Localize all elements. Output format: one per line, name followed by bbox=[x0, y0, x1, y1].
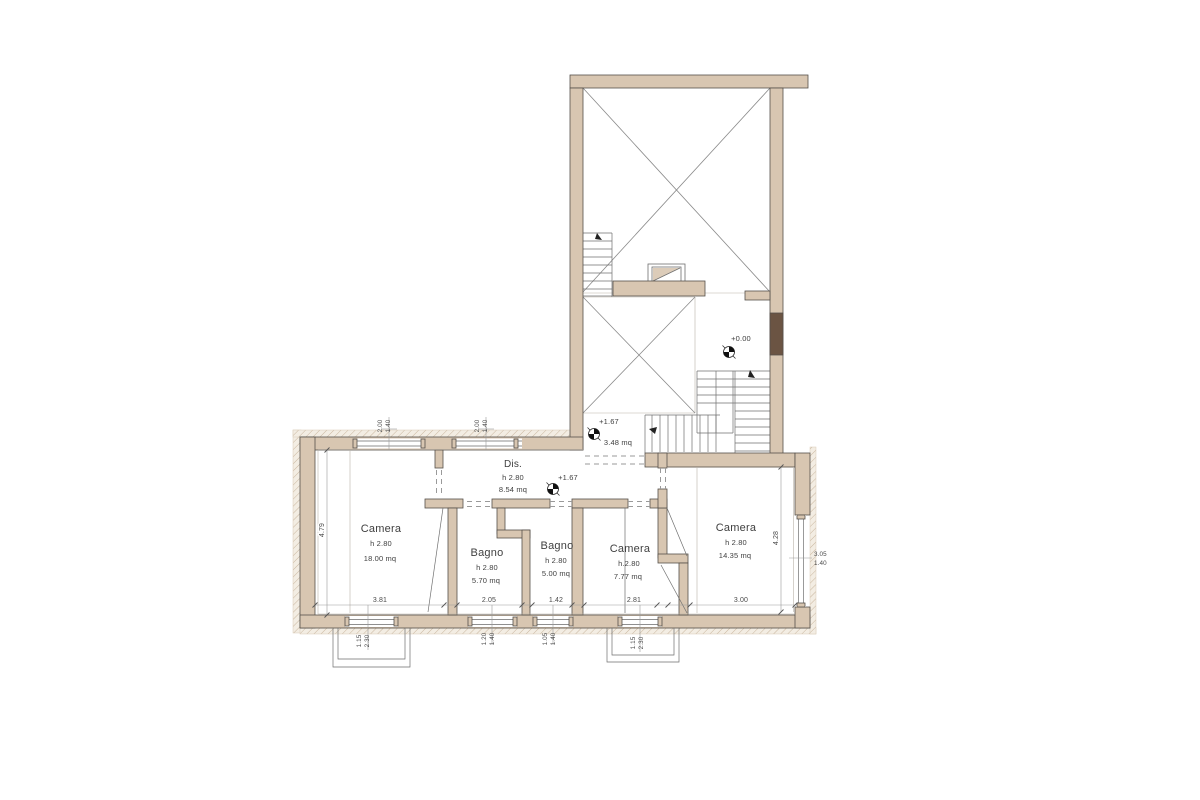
dim-camera1435-width: 3.00 bbox=[734, 597, 748, 604]
room-name: Dis. bbox=[504, 459, 522, 470]
level-marker-symbol bbox=[547, 483, 560, 496]
room-name: Camera bbox=[610, 543, 651, 555]
level-marker-landing: +1.67 bbox=[588, 417, 619, 441]
room-area: 7.77 mq bbox=[614, 572, 642, 581]
dim-camera18-depth: 4.79 bbox=[319, 523, 326, 537]
dim-bagno500-width: 1.42 bbox=[549, 597, 563, 604]
room-height: h 2.80 bbox=[725, 538, 747, 547]
wall-section-dark bbox=[770, 313, 783, 355]
level-value: +1.67 bbox=[558, 473, 578, 482]
room-height: h 2.80 bbox=[476, 563, 498, 572]
window-right bbox=[796, 515, 806, 607]
level-marker-symbol bbox=[723, 346, 736, 359]
dim-window: 2.30 bbox=[638, 636, 645, 649]
outer-walls-tower bbox=[570, 75, 808, 467]
dim-window: 1.20 bbox=[481, 632, 488, 645]
stairs-upper-flight bbox=[582, 233, 612, 297]
tower-bottom-wall bbox=[645, 453, 795, 467]
room-name: Bagno bbox=[471, 547, 504, 559]
stairs-landing-flight bbox=[645, 415, 720, 453]
level-marker-hallway: +1.67 bbox=[547, 473, 578, 496]
window bbox=[452, 439, 522, 449]
dim-window: 2.00 bbox=[474, 419, 481, 432]
window bbox=[468, 616, 517, 627]
dim-window: 2.30 bbox=[364, 634, 371, 647]
room-height: h 2.80 bbox=[502, 473, 524, 482]
void-small-cross bbox=[583, 297, 695, 413]
stair-direction-arrow bbox=[595, 233, 602, 240]
dim-camera777-width: 2.81 bbox=[627, 597, 641, 604]
room-area: 5.00 mq bbox=[542, 569, 570, 578]
skylight-element bbox=[648, 264, 685, 282]
interior-walls bbox=[425, 450, 688, 615]
mid-wall-band bbox=[613, 281, 705, 296]
room-name: Bagno bbox=[541, 540, 574, 552]
dim-window: 1.40 bbox=[550, 632, 557, 645]
room-name: Camera bbox=[361, 523, 402, 535]
dim-window: 1.15 bbox=[356, 634, 363, 647]
room-label-bagno-500: Bagno h 2.80 5.00 mq bbox=[541, 540, 574, 578]
balcony-door bbox=[345, 616, 398, 627]
room-height: h 2.80 bbox=[370, 539, 392, 548]
room-label-camera-18: Camera h 2.80 18.00 mq bbox=[361, 523, 402, 563]
level-value: +1.67 bbox=[599, 417, 619, 426]
void-large-cross bbox=[583, 88, 770, 293]
room-label-bagno-570: Bagno h 2.80 5.70 mq bbox=[471, 547, 504, 585]
room-area: 5.70 mq bbox=[472, 576, 500, 585]
room-area: 18.00 mq bbox=[364, 554, 396, 563]
wall-stub bbox=[745, 291, 770, 300]
door-openings bbox=[437, 456, 666, 507]
dim-window: 1.40 bbox=[489, 632, 496, 645]
room-area: 8.54 mq bbox=[499, 485, 527, 494]
dim-window-right-w: 3.05 bbox=[814, 551, 827, 558]
floor-plan-page: { "colors": { "wall": "#d8c6b1", "wall_d… bbox=[0, 0, 1200, 800]
dim-window: 1.15 bbox=[630, 636, 637, 649]
room-label-camera-777: Camera h.2.80 7.77 mq bbox=[610, 543, 651, 581]
room-name: Camera bbox=[716, 522, 757, 534]
dim-window: 1.05 bbox=[542, 632, 549, 645]
room-area: 14.35 mq bbox=[719, 551, 751, 560]
dim-camera18-width: 3.81 bbox=[373, 597, 387, 604]
landing-area-label: 3.48 mq bbox=[604, 438, 632, 447]
dim-window: 1.40 bbox=[482, 419, 489, 432]
dim-window-right-h: 1.40 bbox=[814, 560, 827, 567]
room-label-dis: Dis. h 2.80 8.54 mq bbox=[499, 459, 527, 494]
level-marker-symbol bbox=[588, 428, 601, 441]
dim-window: 1.40 bbox=[385, 419, 392, 432]
floor-plan-svg: Camera h 2.80 18.00 mq Bagno h 2.80 5.70… bbox=[0, 0, 1200, 800]
dim-window: 2.00 bbox=[377, 419, 384, 432]
room-height: h.2.80 bbox=[618, 559, 640, 568]
room-label-camera-1435: Camera h 2.80 14.35 mq bbox=[716, 522, 757, 560]
stair-direction-arrow bbox=[649, 427, 657, 434]
dim-camera1435-depth: 4.28 bbox=[773, 531, 780, 545]
level-marker-ground: +0.00 bbox=[723, 334, 751, 359]
room-height: h 2.80 bbox=[545, 556, 567, 565]
level-value: +0.00 bbox=[731, 334, 751, 343]
dim-bagno570-width: 2.05 bbox=[482, 597, 496, 604]
